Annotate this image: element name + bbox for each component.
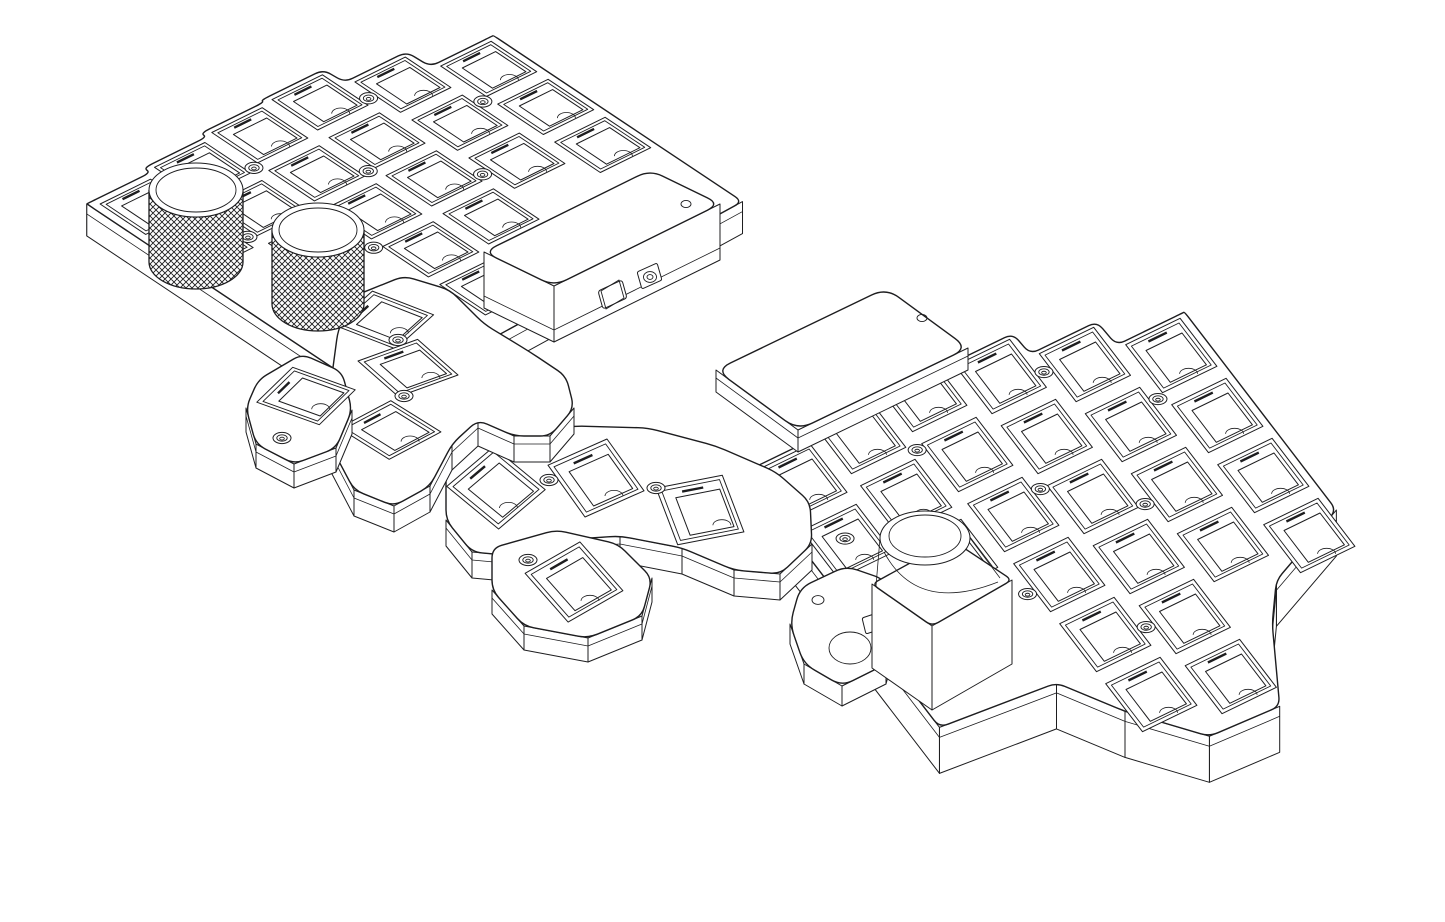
countersunk-screw-hole bbox=[1137, 621, 1155, 632]
countersink-outer bbox=[540, 474, 558, 485]
countersunk-screw-hole bbox=[1136, 498, 1154, 509]
countersink-outer bbox=[519, 554, 537, 565]
countersink-outer bbox=[836, 533, 854, 544]
countersink-outer bbox=[395, 390, 413, 401]
cad-drawing-canvas bbox=[0, 0, 1445, 922]
countersink-outer bbox=[1031, 483, 1049, 494]
countersink-outer bbox=[647, 482, 665, 493]
right-keyboard-half bbox=[446, 292, 1355, 782]
countersink-outer bbox=[474, 96, 492, 107]
countersunk-screw-hole bbox=[519, 554, 537, 565]
countersunk-screw-hole bbox=[365, 242, 383, 253]
countersink-outer bbox=[1137, 621, 1155, 632]
countersunk-screw-hole bbox=[908, 444, 926, 455]
countersunk-screw-hole bbox=[389, 334, 407, 345]
countersink-outer bbox=[474, 169, 492, 180]
countersunk-screw-hole bbox=[360, 93, 378, 104]
countersunk-screw-hole bbox=[245, 162, 263, 173]
cad-figure bbox=[0, 0, 1445, 922]
knob-top-face bbox=[272, 203, 364, 257]
countersunk-screw-hole bbox=[359, 165, 377, 176]
countersunk-screw-hole bbox=[647, 482, 665, 493]
countersink-outer bbox=[273, 432, 291, 443]
countersunk-screw-hole bbox=[1019, 588, 1037, 599]
countersunk-screw-hole bbox=[1031, 483, 1049, 494]
right-thumb-cluster-side-face bbox=[734, 570, 780, 600]
countersunk-screw-hole bbox=[474, 169, 492, 180]
countersunk-screw-hole bbox=[836, 533, 854, 544]
countersink-outer bbox=[365, 242, 383, 253]
rotary-knob-rear bbox=[149, 163, 243, 289]
countersink-outer bbox=[360, 93, 378, 104]
knob-top-face bbox=[149, 163, 243, 217]
countersunk-screw-hole bbox=[1149, 393, 1167, 404]
countersunk-screw-hole bbox=[273, 432, 291, 443]
left-thumb-cluster-side-face bbox=[514, 436, 550, 462]
countersink-outer bbox=[908, 444, 926, 455]
countersunk-screw-hole bbox=[395, 390, 413, 401]
countersink-outer bbox=[1019, 588, 1037, 599]
countersink-outer bbox=[245, 162, 263, 173]
countersink-outer bbox=[1149, 393, 1167, 404]
countersunk-screw-hole bbox=[474, 96, 492, 107]
countersink-outer bbox=[359, 165, 377, 176]
countersunk-screw-hole bbox=[1035, 366, 1053, 377]
countersink-outer bbox=[389, 334, 407, 345]
countersunk-screw-hole bbox=[540, 474, 558, 485]
rotary-knob-front bbox=[272, 203, 364, 331]
cad-viewport bbox=[0, 0, 1445, 922]
countersink-outer bbox=[1136, 498, 1154, 509]
countersink-outer bbox=[1035, 366, 1053, 377]
